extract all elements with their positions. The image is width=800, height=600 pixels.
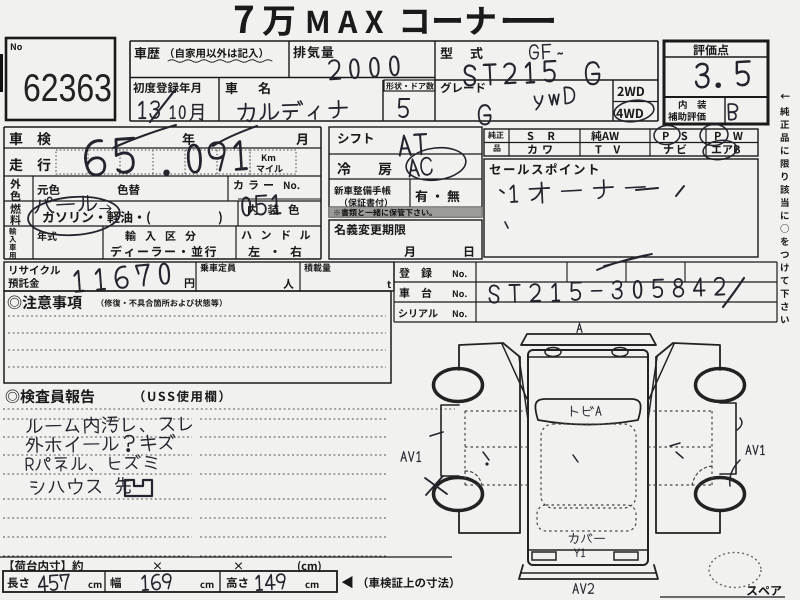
svg-text:62363: 62363 (23, 66, 112, 110)
